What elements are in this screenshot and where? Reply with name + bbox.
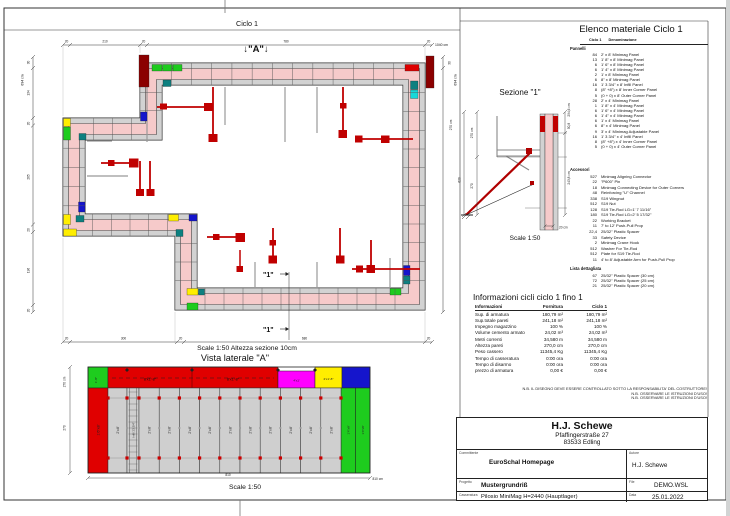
svg-text:1'4"x8': 1'4"x8' bbox=[347, 425, 351, 434]
data-value: 25.01.2022 bbox=[652, 494, 684, 501]
data-label: Data bbox=[629, 493, 636, 497]
svg-text:20: 20 bbox=[27, 309, 31, 313]
progetto-value: Mustergrundriß bbox=[481, 482, 528, 489]
casseratura-value: Pilosio MiniMag H=2440 (Hauptlager) bbox=[481, 494, 578, 500]
row-progetto: Progetto Mustergrundriß File DEMO.WSL bbox=[457, 479, 707, 492]
plan-walers bbox=[87, 87, 390, 288]
info-table-rows: Sup. di armatura 180,79 m² 180,79 m² Sup… bbox=[475, 312, 607, 375]
svg-text:780: 780 bbox=[283, 40, 289, 44]
file-value: DEMO.WSL bbox=[654, 482, 688, 489]
company-address2: 83533 Edling bbox=[457, 439, 707, 446]
svg-text:2'x8': 2'x8' bbox=[249, 426, 253, 434]
casseratura-label: Casseratura bbox=[459, 493, 477, 497]
pannelli-list: 842' x 8' Minimag Panel 131' 8" x 8' Min… bbox=[466, 52, 708, 150]
lista-dettagliata-list: 6725/32" Plastic Spacer (30 cm) 7225/32"… bbox=[466, 273, 708, 289]
svg-text:20: 20 bbox=[65, 40, 69, 44]
svg-text:20: 20 bbox=[65, 337, 69, 341]
svg-text:20: 20 bbox=[179, 337, 183, 341]
svg-text:"1": "1" bbox=[263, 327, 274, 334]
svg-text:2'x8': 2'x8' bbox=[269, 426, 273, 434]
material-row: 2125/32" Plastic Spacer (20 cm) bbox=[466, 283, 708, 288]
accessori-list: 527Minimag Aligning Connector 22"P600" P… bbox=[466, 174, 708, 263]
svg-text:1040 cm: 1040 cm bbox=[435, 43, 448, 47]
col-name-header: Denominazione bbox=[609, 38, 637, 42]
svg-text:196: 196 bbox=[27, 268, 31, 274]
vista-scale: Scale 1:50 bbox=[185, 484, 305, 491]
svg-text:270: 270 bbox=[63, 425, 67, 431]
svg-text:2'x8': 2'x8' bbox=[148, 426, 152, 434]
drawing-sheet: 20 210 20 780 20 1040 cm 30 134 20 265 2… bbox=[0, 0, 730, 516]
material-list-title: Elenco materiale Ciclo 1 bbox=[540, 24, 722, 35]
svg-text:810: 810 bbox=[225, 473, 231, 477]
company-name: H.J. Schewe bbox=[457, 418, 707, 432]
svg-text:4'x1': 4'x1' bbox=[293, 379, 300, 383]
company-address1: Pfaffingerstraße 27 bbox=[457, 432, 707, 439]
material-list-header: Ciclo 1 Denominazione bbox=[589, 38, 637, 42]
svg-text:694 cm: 694 cm bbox=[21, 74, 25, 85]
svg-text:1'-8": 1'-8" bbox=[94, 377, 98, 383]
svg-text:694 cm: 694 cm bbox=[454, 74, 458, 85]
autore-value: H.J. Schewe bbox=[632, 462, 667, 469]
plan-wall-ring bbox=[74, 74, 414, 299]
svg-text:30: 30 bbox=[448, 61, 452, 65]
svg-text:2'x8': 2'x8' bbox=[309, 426, 313, 434]
svg-text:30: 30 bbox=[27, 61, 31, 65]
lista-dettagliata-label: Lista dettagliata bbox=[570, 266, 601, 271]
title-block: H.J. Schewe Pfaffingerstraße 27 83533 Ed… bbox=[456, 417, 708, 501]
svg-text:2'x8': 2'x8' bbox=[116, 426, 120, 434]
file-label: File bbox=[629, 480, 634, 484]
company-header: H.J. Schewe Pfaffingerstraße 27 83533 Ed… bbox=[457, 418, 707, 450]
svg-text:"1": "1" bbox=[263, 272, 274, 279]
pannelli-label: Pannelli bbox=[570, 46, 586, 51]
info-table-header: Informazioni Fornitura Ciclo 1 bbox=[475, 304, 607, 311]
svg-text:20: 20 bbox=[427, 337, 431, 341]
progetto-label: Progetto bbox=[459, 480, 472, 484]
col-qty-header: Ciclo 1 bbox=[589, 38, 601, 42]
svg-text:2'x1'-8": 2'x1'-8" bbox=[323, 377, 333, 381]
plan-special-panels bbox=[64, 55, 435, 310]
svg-text:2'x8': 2'x8' bbox=[168, 426, 172, 434]
plan-scale-note: Scale 1:50 Altezza sezione 10cm bbox=[147, 345, 347, 352]
svg-text:2'x8': 2'x8' bbox=[188, 426, 192, 434]
autore-label: Autore bbox=[629, 451, 639, 455]
row-casseratura: Casseratura Pilosio MiniMag H=2440 (Haup… bbox=[457, 492, 707, 502]
svg-text:300: 300 bbox=[121, 337, 127, 341]
svg-text:Infill 1'3 3/4": Infill 1'3 3/4" bbox=[131, 422, 135, 437]
material-row: 114' to 8' Adjustable Arm for Push-Pull … bbox=[466, 257, 708, 263]
material-row: 5(0 + 0) x 4' Outer Corner Panel bbox=[466, 144, 708, 149]
svg-text:810 cm: 810 cm bbox=[373, 477, 384, 481]
svg-text:20: 20 bbox=[142, 40, 146, 44]
scan-edge bbox=[726, 0, 730, 516]
svg-text:680: 680 bbox=[302, 337, 308, 341]
committente-value: EuroSchal Homepage bbox=[489, 459, 554, 466]
svg-text:20: 20 bbox=[27, 122, 31, 126]
plan-title: Ciclo 1 bbox=[207, 19, 287, 28]
svg-text:620: 620 bbox=[458, 177, 462, 183]
plan-view-drawing: 20 210 20 780 20 1040 cm 30 134 20 265 2… bbox=[21, 40, 458, 345]
svg-text:210: 210 bbox=[102, 40, 108, 44]
row-committente: Committente EuroSchal Homepage Autore H.… bbox=[457, 450, 707, 479]
svg-text:134: 134 bbox=[27, 90, 31, 96]
svg-text:8'x1'-8": 8'x1'-8" bbox=[144, 378, 157, 382]
svg-text:1'4"x8': 1'4"x8' bbox=[361, 425, 365, 434]
svg-text:2'x8': 2'x8' bbox=[329, 426, 333, 434]
info-table-title: Informazioni cicli ciclo 1 fino 1 bbox=[473, 292, 583, 302]
nb-note-line: N.B. OSSERVARE LE ISTRUZIONI D'USO! bbox=[440, 396, 707, 401]
svg-text:20: 20 bbox=[427, 40, 431, 44]
section-a-marker: ↓"A"↓ bbox=[216, 44, 296, 55]
header-rule bbox=[580, 44, 708, 45]
svg-text:8'x1'-8": 8'x1'-8" bbox=[227, 378, 240, 382]
svg-text:265: 265 bbox=[27, 174, 31, 180]
svg-text:20: 20 bbox=[27, 228, 31, 232]
svg-text:2'x8': 2'x8' bbox=[208, 426, 212, 434]
svg-text:2'x8': 2'x8' bbox=[228, 426, 232, 434]
svg-text:2'x8': 2'x8' bbox=[289, 426, 293, 434]
nb-notes: N.B. IL DISEGNO DEVE ESSERE CONTROLLATO … bbox=[440, 387, 707, 401]
svg-text:270 cm: 270 cm bbox=[63, 376, 67, 387]
vista-title: Vista laterale "A" bbox=[135, 353, 335, 363]
vista-laterale-drawing: 2'x8'Infill 1'3 3/4"2'x8'2'x8'2'x8'2'x8'… bbox=[63, 365, 384, 481]
accessori-label: Accessori bbox=[570, 167, 590, 172]
committente-label: Committente bbox=[459, 451, 478, 455]
info-row: prezzo di armatura 0,00 € 0,00 € bbox=[475, 368, 607, 374]
svg-text:270 cm: 270 cm bbox=[449, 119, 453, 130]
svg-text:1'6"x8': 1'6"x8' bbox=[97, 424, 101, 435]
